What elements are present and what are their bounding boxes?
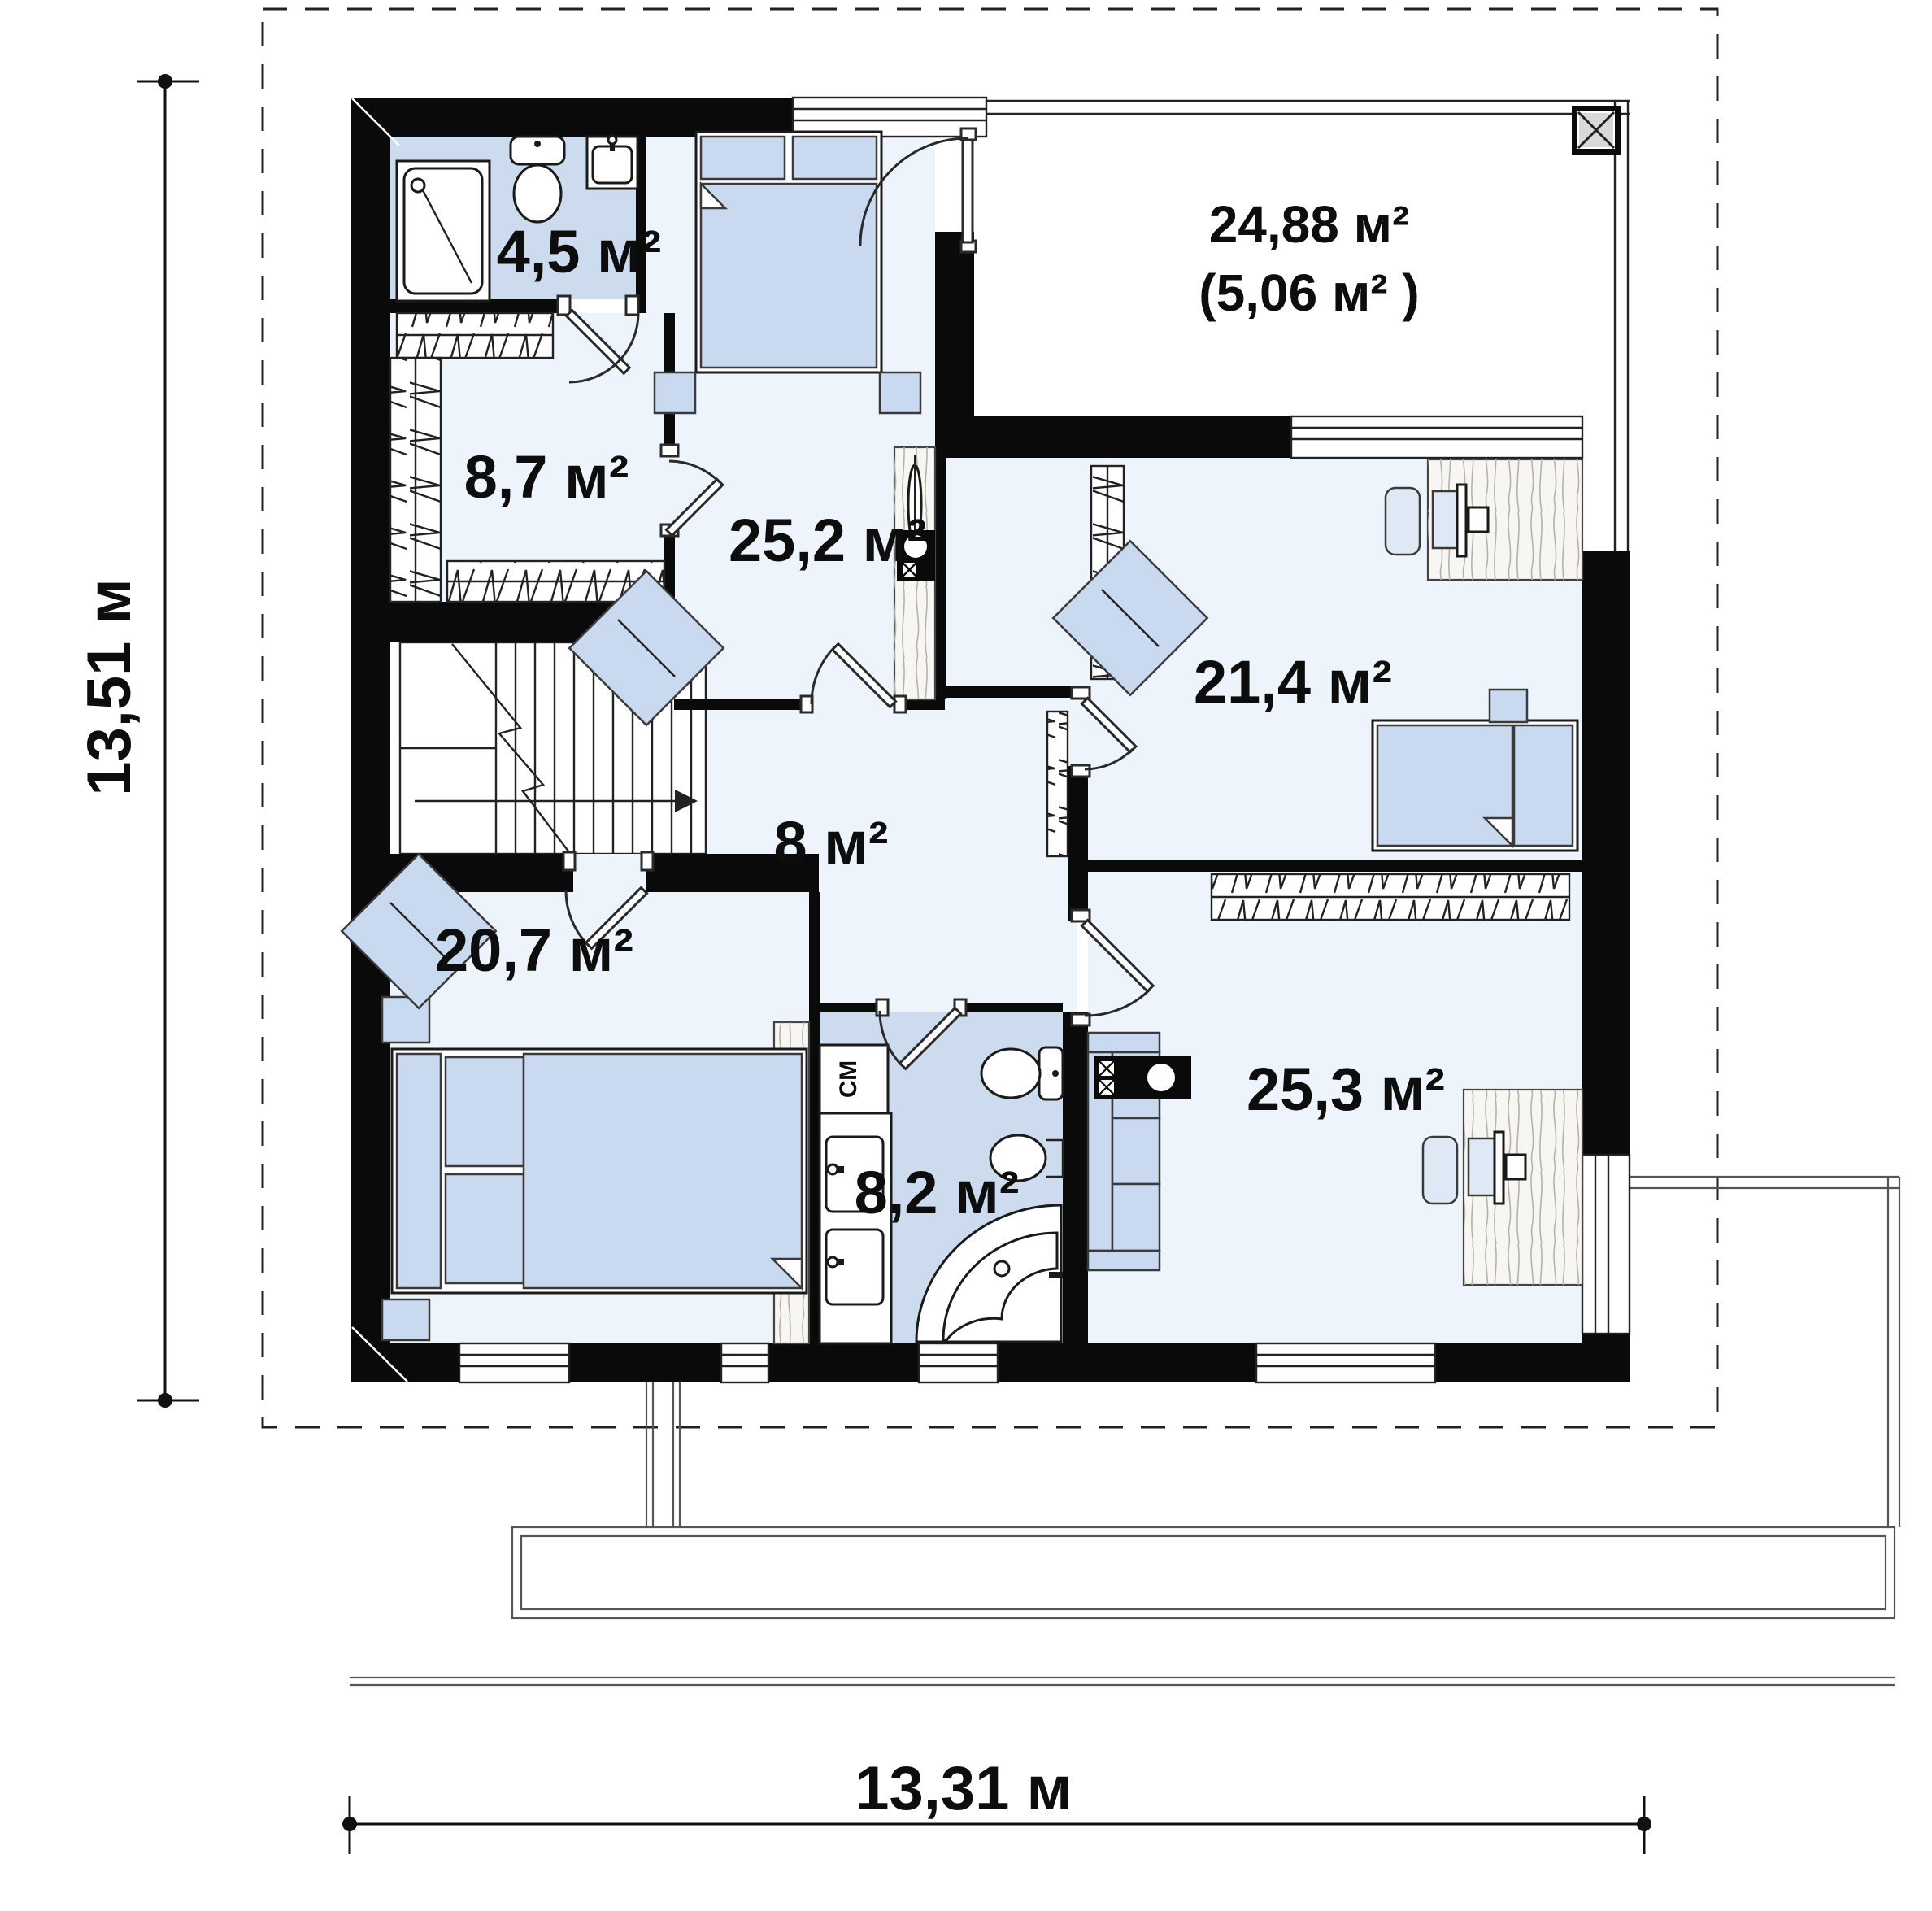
- window-bedroom-bottom-right: [1256, 1343, 1435, 1382]
- window-bedroom-bottom-right-side: [1582, 1155, 1630, 1334]
- shower-icon: [397, 161, 490, 301]
- room-label-hallway: 8 м²: [773, 809, 888, 877]
- window-bedroom-left-bottom-small: [721, 1343, 768, 1382]
- room-label-terrace: 24,88 м²: [1209, 195, 1410, 254]
- room-label-bedroom-left: 20,7 м²: [435, 916, 633, 984]
- horizontal-dimension-label: 13,31 м: [855, 1754, 1073, 1823]
- horizontal-dimension: 13,31 м: [342, 1754, 1651, 1854]
- bathroom-counter: [820, 1113, 891, 1343]
- wardrobe-rail-icon: [397, 313, 553, 358]
- terrace-column-icon: [1572, 106, 1621, 155]
- vertical-dimension-label: 13,51 м: [75, 578, 144, 796]
- room-label-bathroom-bottom: 8,2 м²: [855, 1159, 1020, 1226]
- room-label-bathroom-top: 4,5 м²: [497, 218, 662, 285]
- wardrobe-rail-icon: [390, 358, 441, 602]
- room-label-bedroom-bottom-right: 25,3 м²: [1247, 1056, 1445, 1123]
- wardrobe-rail-icon: [1212, 874, 1569, 920]
- nightstand-icon: [382, 1299, 429, 1340]
- nightstand-icon: [1490, 690, 1527, 722]
- window-bedroom-left-bottom: [459, 1343, 569, 1382]
- room-label-bedroom-right: 21,4 м²: [1194, 648, 1392, 716]
- nightstand-icon: [655, 372, 695, 413]
- desk-chair-icon: [1423, 1137, 1457, 1204]
- floor-plan-drawing: 13,51 м 13,31 м: [0, 0, 1932, 1911]
- room-label-bedroom-top: 25,2 м²: [729, 507, 927, 574]
- toilet-icon: [511, 137, 564, 222]
- desk-chair-icon: [1386, 488, 1420, 555]
- washing-machine-icon: СМ: [820, 1045, 888, 1113]
- sink-icon: [587, 136, 637, 189]
- room-hallway-lower: [819, 860, 1077, 1012]
- nightstand-icon: [880, 372, 920, 413]
- floor-plan-page: 13,51 м 13,31 м: [0, 0, 1932, 1911]
- window-bedroom-right-top: [1291, 416, 1582, 458]
- room-label-wardrobe: 8,7 м²: [464, 443, 629, 511]
- vertical-dimension: 13,51 м: [75, 74, 199, 1408]
- window-bathroom-bottom: [919, 1343, 998, 1382]
- washing-machine-label: СМ: [835, 1060, 862, 1098]
- bed-icon: [382, 997, 807, 1340]
- fireplace-icon: [1094, 1056, 1191, 1099]
- sink-icon: [826, 1230, 883, 1304]
- wardrobe-rail-icon: [1047, 712, 1068, 856]
- toilet-icon: [981, 1047, 1063, 1099]
- room-label-terrace-secondary: (5,06 м² ): [1199, 263, 1419, 322]
